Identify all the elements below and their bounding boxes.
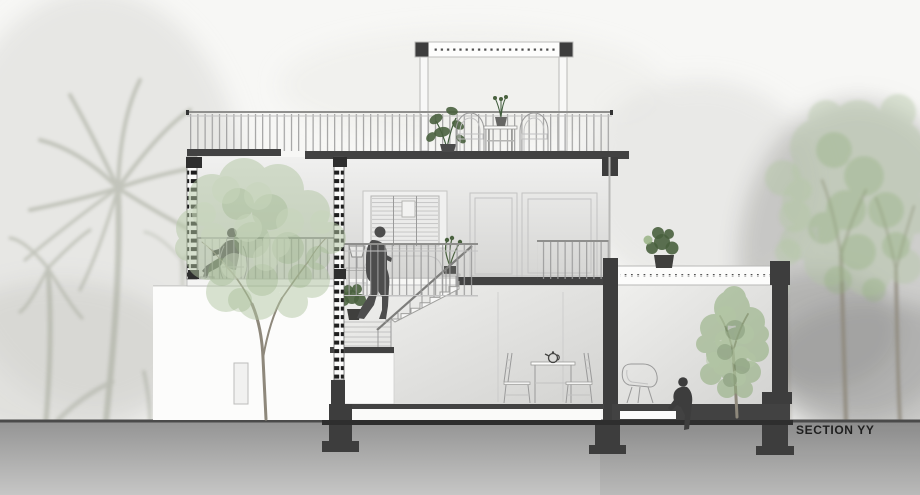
architectural-section-drawing: SECTION YY (0, 0, 920, 495)
plinth (345, 404, 604, 420)
pergola-beam-end (416, 43, 429, 57)
section-drawing-canvas (0, 0, 920, 495)
under-building-ground-bar (322, 420, 793, 425)
louver-window (363, 191, 447, 248)
gate-outline (234, 363, 248, 404)
wall-below-landing (344, 353, 394, 404)
stair-void-railing (340, 243, 478, 296)
upper-right-railing (537, 240, 609, 279)
pergola-beam-end (560, 43, 573, 57)
wing-wall-ledge (762, 392, 792, 404)
section-title: SECTION YY (796, 423, 874, 437)
wing-divider-wall (603, 258, 618, 420)
roof-railing (186, 110, 613, 151)
plant-pot (440, 144, 456, 152)
